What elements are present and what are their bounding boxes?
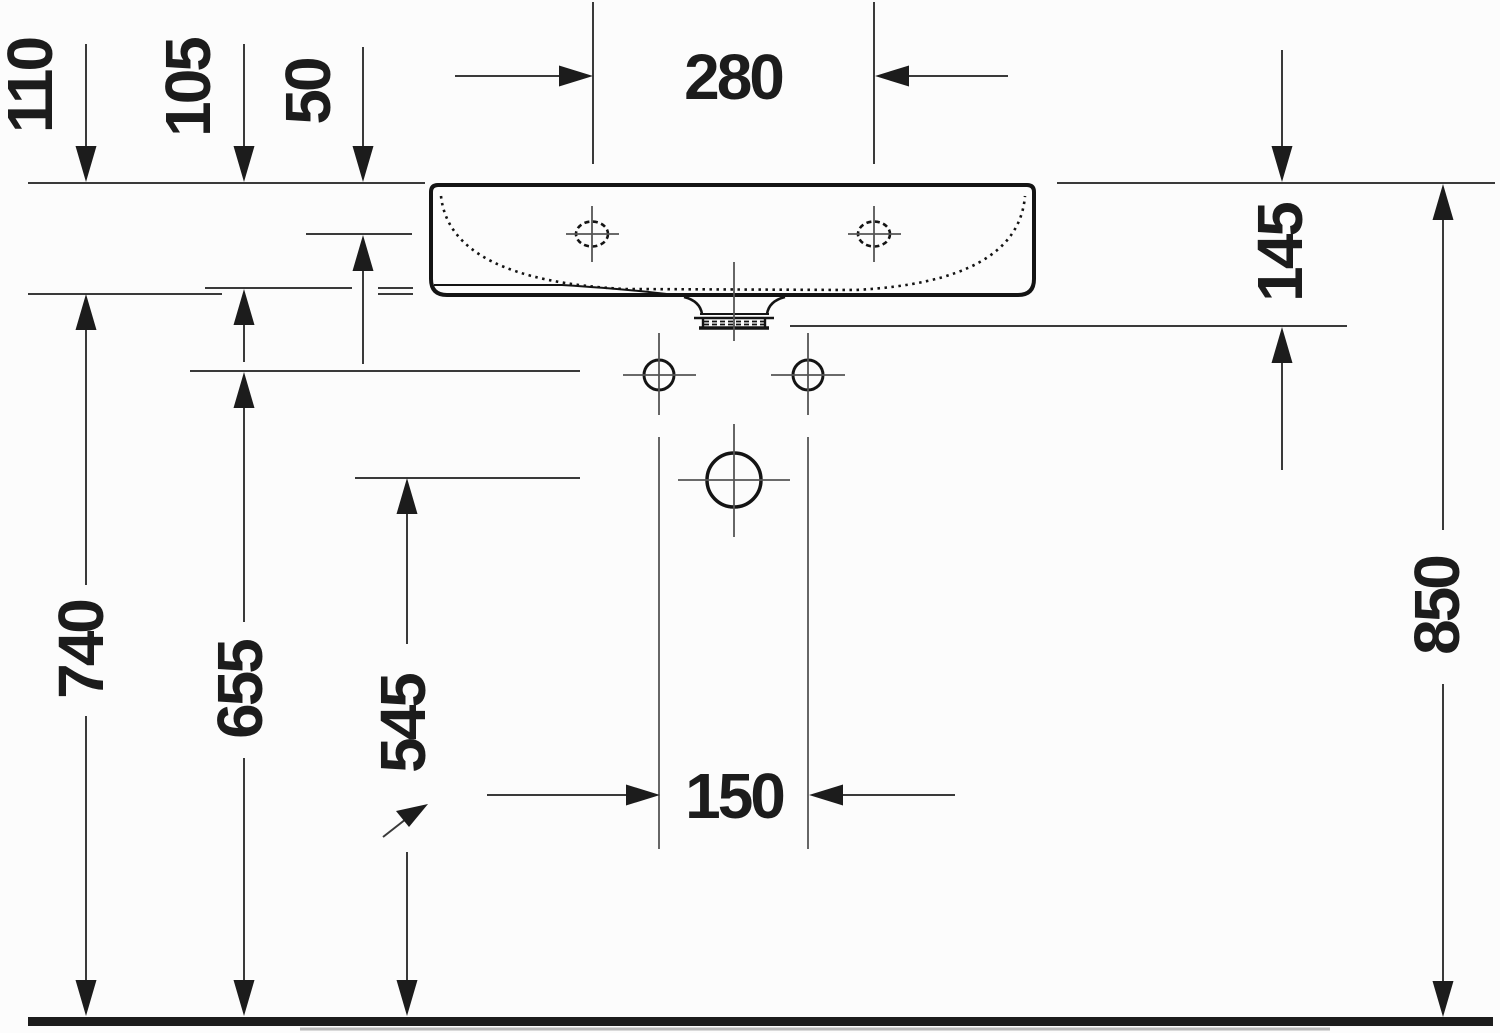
dimension-105: 105 (152, 38, 255, 362)
waste-shoulder-right (767, 297, 785, 314)
dim-145-arrow-up (1272, 327, 1293, 363)
basin-hidden-contour-dotted (441, 196, 1025, 290)
floor-line (28, 1017, 1493, 1029)
dim-280-arrow-right (559, 66, 593, 87)
dim-105-arrow-up (234, 289, 255, 325)
dimension-280: 280 (455, 2, 1008, 164)
dimension-150: 150 (487, 760, 955, 832)
dimension-110: 110 (0, 38, 97, 182)
faucet-hole-left (566, 206, 619, 262)
dim-150-arrow-left (809, 785, 843, 806)
washbasin-outline (431, 185, 1034, 296)
dimension-545: 545 (367, 478, 439, 1016)
dim-105-label: 105 (152, 38, 224, 137)
dim-50-arrow-down (353, 146, 374, 182)
faucet-hole-right (848, 206, 901, 262)
technical-drawing-page: 110 105 50 280 145 740 (0, 0, 1500, 1033)
dim-545-oblique-tail (383, 819, 406, 837)
dim-150-arrow-right (626, 785, 660, 806)
dim-105-arrow-down (234, 146, 255, 182)
dim-545-arrow-down (397, 980, 418, 1016)
dim-50-label: 50 (272, 59, 344, 125)
dimension-655: 655 (204, 372, 276, 1016)
dim-145-arrow-down (1272, 146, 1293, 182)
dim-740-label: 740 (45, 601, 117, 699)
waste-fitting (684, 262, 785, 341)
washbasin-dimension-drawing: 110 105 50 280 145 740 (0, 0, 1500, 1033)
dimension-740: 740 (45, 294, 117, 1016)
dim-150-label: 150 (685, 760, 783, 832)
dim-740-arrow-down (76, 980, 97, 1016)
dimension-145: 145 (1244, 50, 1316, 470)
dim-655-arrow-up (234, 372, 255, 408)
dim-655-arrow-down (234, 980, 255, 1016)
dim-740-arrow-up (76, 294, 97, 330)
dim-280-label: 280 (684, 41, 782, 113)
dim-850-arrow-down (1433, 981, 1454, 1017)
dimension-50: 50 (272, 47, 374, 364)
fixing-hole-right (771, 333, 845, 415)
dim-50-arrow-up (353, 235, 374, 271)
dim-110-arrow-down (76, 146, 97, 182)
dim-655-label: 655 (204, 640, 276, 739)
waste-shoulder-left (684, 297, 702, 314)
dim-145-label: 145 (1244, 203, 1316, 302)
dimension-850: 850 (1401, 184, 1473, 1017)
drain-outlet (678, 424, 790, 537)
dim-850-arrow-up (1433, 184, 1454, 220)
fixing-hole-left (623, 333, 696, 415)
dim-850-label: 850 (1401, 557, 1473, 655)
dim-545-label: 545 (367, 674, 439, 773)
dim-110-label: 110 (0, 38, 66, 133)
dim-280-arrow-left (875, 66, 909, 87)
floor-line-bar (28, 1017, 1493, 1026)
dim-545-arrow-up (397, 478, 418, 514)
washbasin-body-outline (431, 185, 1034, 295)
